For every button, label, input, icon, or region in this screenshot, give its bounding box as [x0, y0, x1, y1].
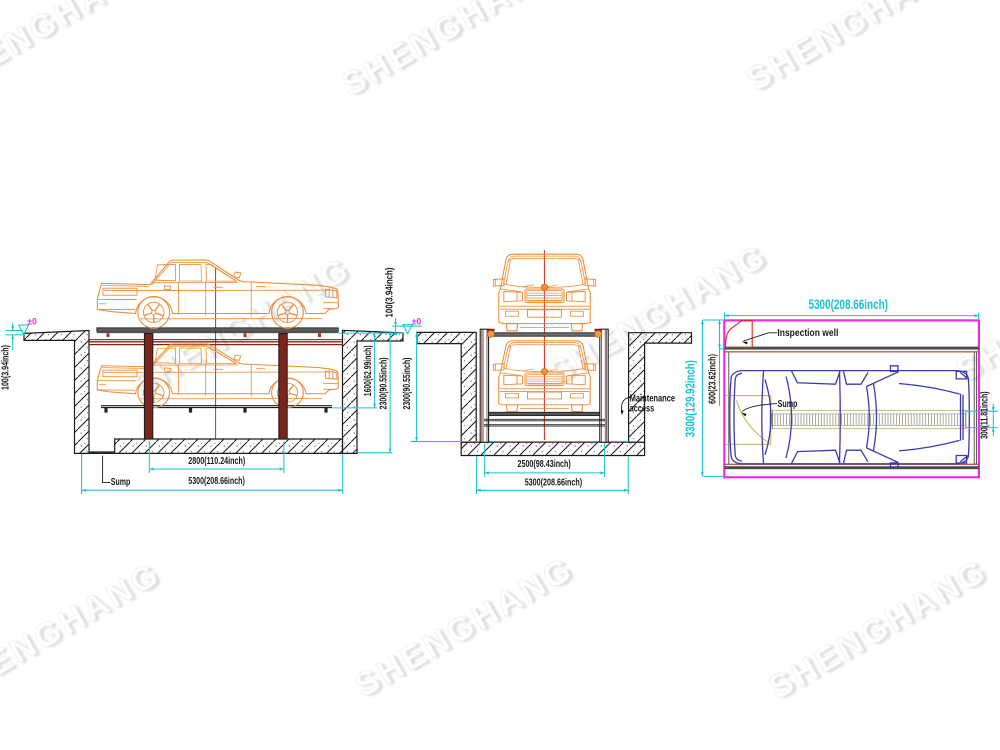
svg-text:2500(98.43inch): 2500(98.43inch)	[518, 459, 571, 470]
svg-text:2800(110.24inch): 2800(110.24inch)	[188, 456, 245, 467]
svg-text:2300(90.55inch): 2300(90.55inch)	[402, 358, 413, 410]
svg-text:600(23.62inch): 600(23.62inch)	[707, 354, 718, 404]
svg-text:SHENGHANG: SHENGHANG	[348, 549, 580, 704]
svg-text:SHENGHANG: SHENGHANG	[0, 0, 162, 101]
svg-text:Sump: Sump	[778, 399, 798, 410]
svg-text:100(3.94inch): 100(3.94inch)	[0, 345, 11, 390]
svg-text:2300(90.55inch): 2300(90.55inch)	[378, 357, 389, 409]
svg-text:±0: ±0	[412, 317, 422, 327]
svg-text:SHENGHANG: SHENGHANG	[0, 554, 167, 709]
svg-text:SHENGHANG: SHENGHANG	[762, 551, 994, 706]
svg-text:Inspection well: Inspection well	[777, 328, 838, 339]
svg-text:Sump: Sump	[111, 477, 131, 488]
svg-text:5300(208.66inch): 5300(208.66inch)	[525, 478, 582, 489]
svg-text:5300(208.66inch): 5300(208.66inch)	[188, 476, 245, 487]
svg-text:100(3.94inch): 100(3.94inch)	[384, 268, 395, 318]
svg-text:SHENGHANG: SHENGHANG	[950, 234, 1000, 389]
svg-text:access: access	[630, 404, 655, 415]
svg-text:SHENGHANG: SHENGHANG	[740, 0, 972, 98]
svg-text:300(11.81inch): 300(11.81inch)	[980, 391, 991, 439]
svg-text:5300(208.66inch): 5300(208.66inch)	[809, 297, 889, 312]
svg-text:SHENGHANG: SHENGHANG	[335, 0, 567, 103]
svg-text:SHENGHANG: SHENGHANG	[542, 236, 774, 391]
svg-text:3300(129.92inch): 3300(129.92inch)	[684, 360, 698, 437]
svg-text:1600(62.99inch): 1600(62.99inch)	[363, 345, 374, 396]
